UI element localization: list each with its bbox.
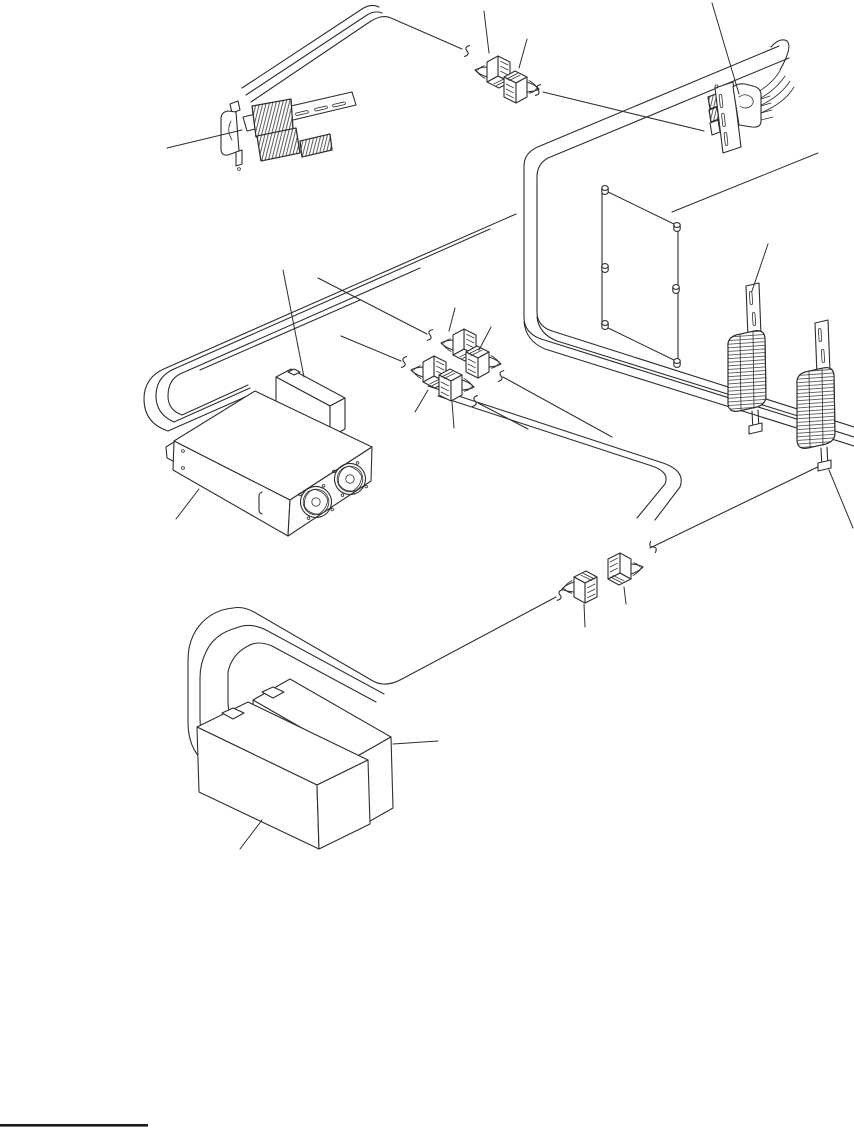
footnote-rule — [0, 1124, 148, 1127]
io-connector-bracket — [708, 82, 773, 153]
card-edge-connector-right — [797, 320, 835, 471]
controller-board — [602, 186, 680, 368]
diagram-page — [0, 0, 854, 1130]
middle-connector-pair-lower — [411, 356, 474, 401]
cable-routing-diagram — [0, 0, 854, 1130]
cable-bracket-assembly — [221, 92, 356, 170]
top-connector-pair — [475, 56, 539, 103]
bottom-connector-pair — [562, 553, 643, 603]
card-edge-connector-left — [728, 283, 766, 434]
